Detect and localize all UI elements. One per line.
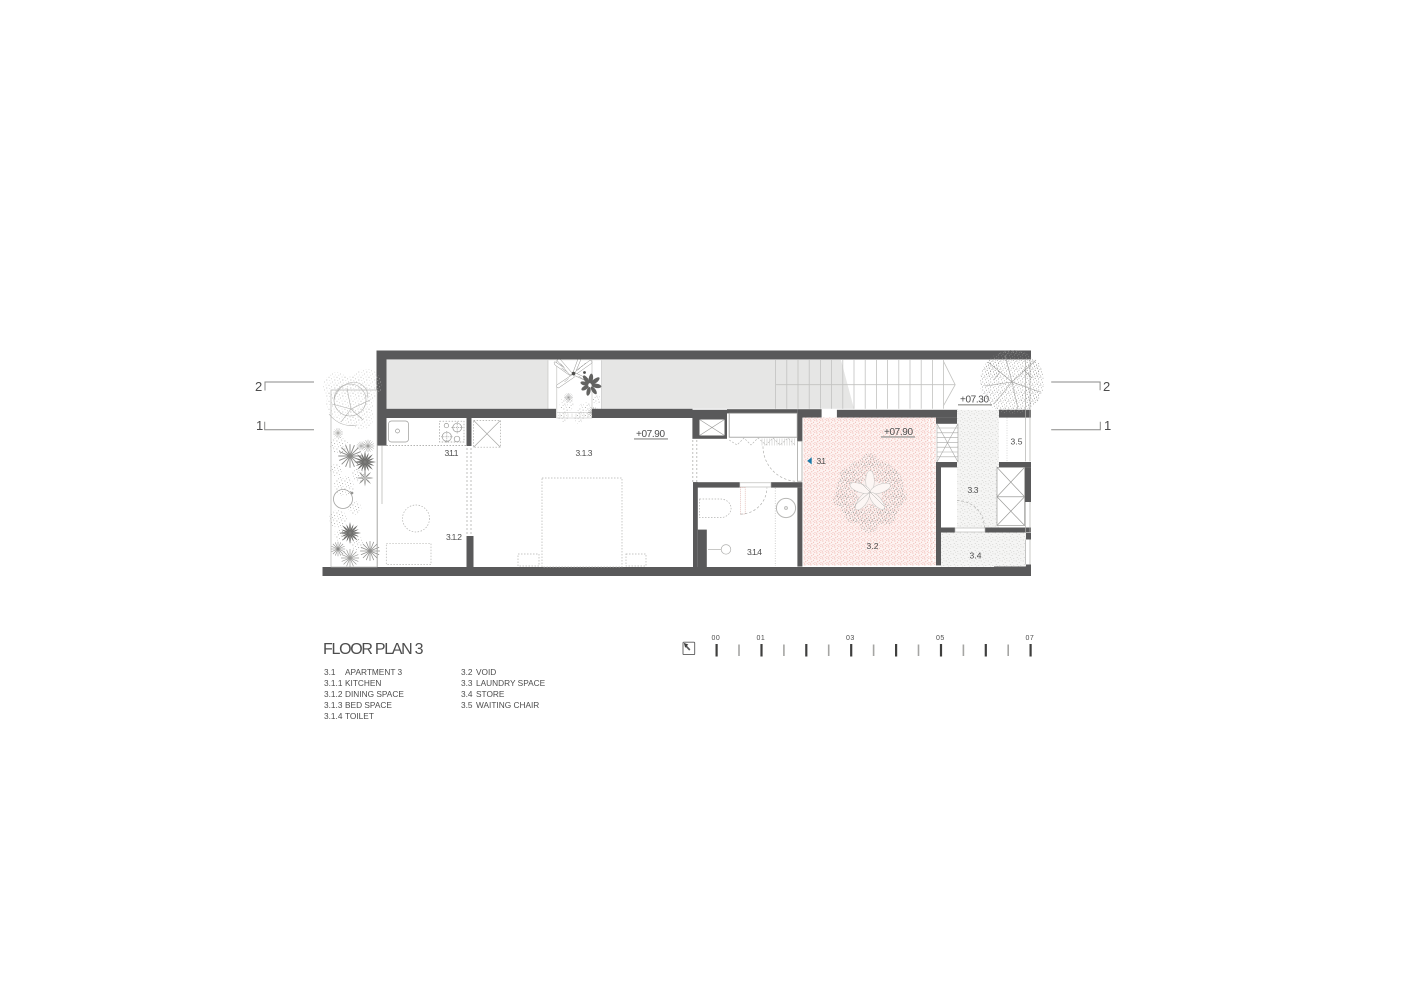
svg-text:3.1.2: 3.1.2 (446, 532, 462, 542)
svg-text:3.2: 3.2 (461, 667, 473, 677)
svg-text:2: 2 (1103, 379, 1110, 394)
svg-text:3.1.1: 3.1.1 (324, 678, 343, 688)
svg-text:07: 07 (1026, 635, 1035, 642)
svg-text:3.1.3: 3.1.3 (576, 448, 593, 458)
svg-text:00: 00 (712, 635, 721, 642)
svg-text:3.3: 3.3 (968, 485, 979, 495)
svg-text:3.1: 3.1 (817, 456, 827, 466)
svg-text:1: 1 (1104, 418, 1111, 433)
svg-text:3.1.4: 3.1.4 (747, 547, 762, 557)
svg-text:3.4: 3.4 (970, 551, 982, 561)
svg-text:2: 2 (255, 379, 262, 394)
svg-text:LAUNDRY SPACE: LAUNDRY SPACE (476, 678, 546, 688)
svg-text:DINING SPACE: DINING SPACE (345, 689, 404, 699)
svg-text:3.1.1: 3.1.1 (445, 448, 459, 458)
svg-text:3.2: 3.2 (867, 541, 879, 551)
svg-text:05: 05 (936, 635, 945, 642)
svg-text:KITCHEN: KITCHEN (345, 678, 381, 688)
svg-text:3.4: 3.4 (461, 689, 473, 699)
svg-text:APARTMENT 3: APARTMENT 3 (345, 667, 403, 677)
svg-text:1: 1 (256, 418, 263, 433)
svg-text:BED SPACE: BED SPACE (345, 700, 392, 710)
svg-text:3.1.3: 3.1.3 (324, 700, 343, 710)
svg-text:3.1: 3.1 (324, 667, 336, 677)
svg-text:01: 01 (757, 635, 766, 642)
svg-text:3.5: 3.5 (1011, 437, 1023, 447)
svg-text:3.1.4: 3.1.4 (324, 711, 343, 721)
svg-text:WAITING CHAIR: WAITING CHAIR (476, 700, 539, 710)
svg-text:03: 03 (846, 635, 855, 642)
svg-text:VOID: VOID (476, 667, 496, 677)
svg-text:STORE: STORE (476, 689, 505, 699)
svg-text:3.5: 3.5 (461, 700, 473, 710)
svg-text:TOILET: TOILET (345, 711, 374, 721)
svg-text:3.3: 3.3 (461, 678, 473, 688)
svg-text:3.1.2: 3.1.2 (324, 689, 343, 699)
svg-text:FLOOR PLAN 3: FLOOR PLAN 3 (323, 641, 424, 658)
